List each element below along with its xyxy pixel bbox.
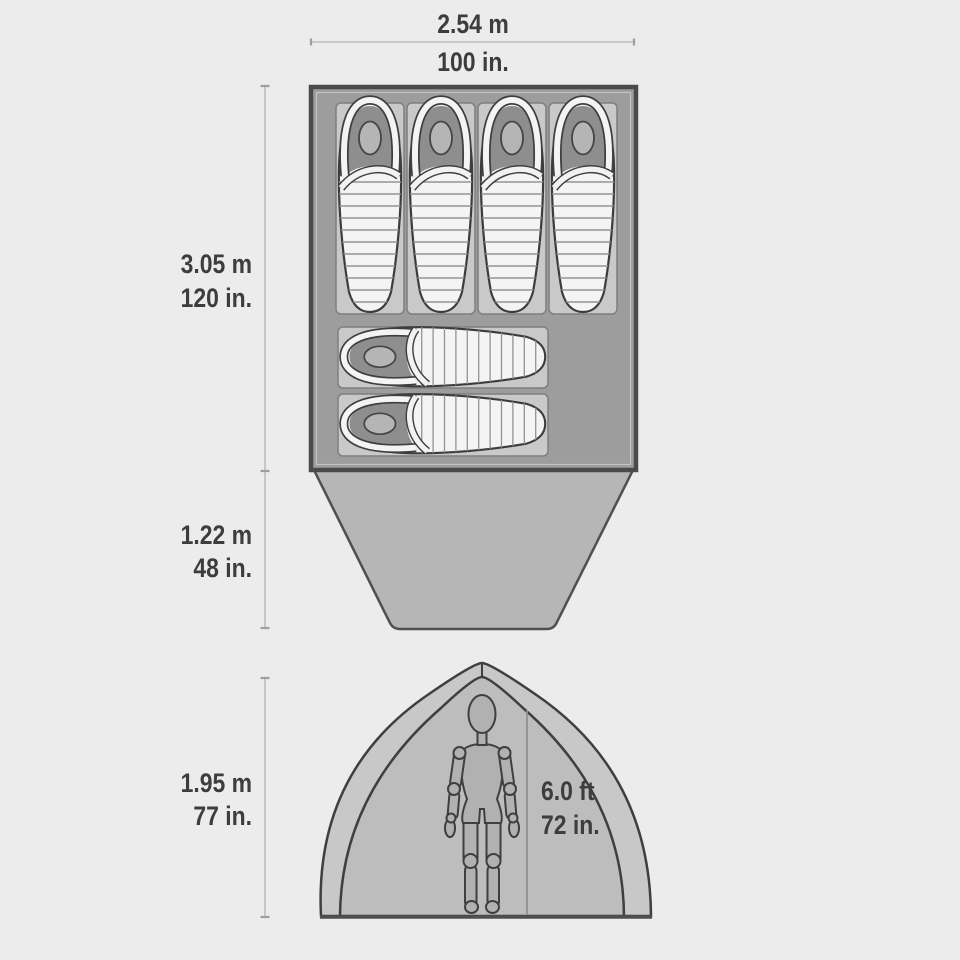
mannequin-head [469,695,496,733]
mannequin-right-leg [486,817,501,913]
clearance-feet-label: 6.0 ft [541,776,595,806]
width-metric-label: 2.54 m [437,9,508,39]
sleeping-bag-horizontal [344,392,545,455]
width-imperial-label: 100 in. [437,47,508,77]
peak-height-imperial-label: 77 in. [193,801,252,831]
sleeping-bag-vertical [337,100,403,312]
sleeping-bag-vertical [550,100,616,312]
mannequin-left-leg [464,817,479,913]
clearance-imperial-label: 72 in. [541,810,600,840]
peak-height-metric-label: 1.95 m [181,768,252,798]
tent-dimension-diagram: 2.54 m 100 in. 3.05 m 120 in. 1.22 m 48 … [0,0,960,960]
vestibule-footprint [314,470,633,629]
sleeping-bag-horizontal [344,325,545,388]
floor-length-metric-label: 3.05 m [181,249,252,279]
vestibule-metric-label: 1.22 m [181,520,252,550]
front-profile-view [320,663,652,917]
diagram-canvas: 2.54 m 100 in. 3.05 m 120 in. 1.22 m 48 … [0,0,960,960]
floor-plan-view [311,87,636,629]
sleeping-bag-vertical [479,100,545,312]
floor-length-imperial-label: 120 in. [181,283,252,313]
vestibule-imperial-label: 48 in. [193,553,252,583]
sleeping-bag-vertical [408,100,474,312]
